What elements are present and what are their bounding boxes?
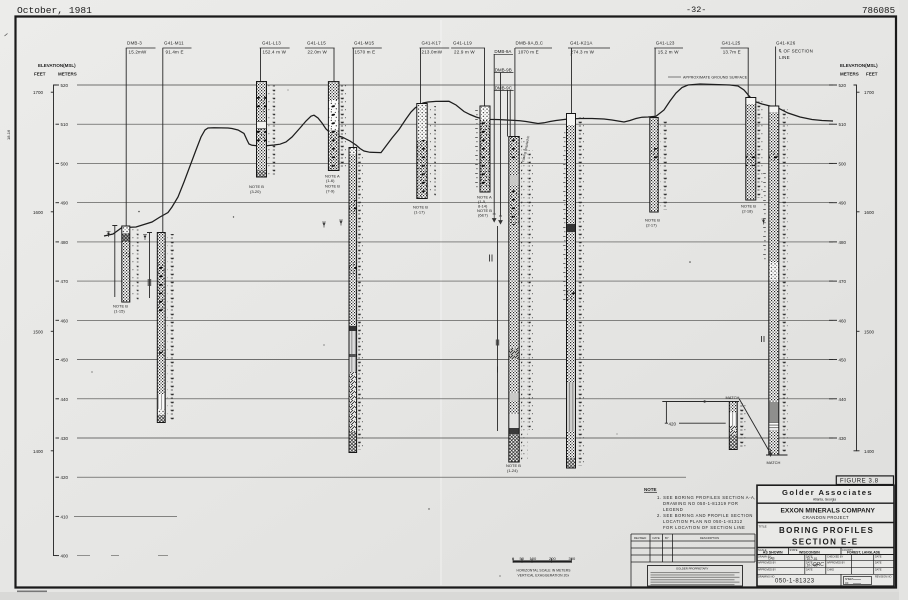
svg-text:Atlanta, Georgia: Atlanta, Georgia [813,497,836,501]
svg-text:1600: 1600 [33,210,44,215]
svg-text:℄ OF SECTION: ℄ OF SECTION [778,49,813,54]
svg-text:10-7-81: 10-7-81 [807,564,818,568]
svg-text:500: 500 [61,161,69,166]
svg-text:430: 430 [839,436,847,441]
svg-text:CAB: CAB [768,557,775,561]
svg-text:213.0mW: 213.0mW [422,49,443,54]
svg-text:APPROVED BY: APPROVED BY [758,568,776,571]
svg-text:BY: BY [665,536,669,540]
svg-text:October, 1981: October, 1981 [17,5,92,16]
svg-text:DATE: DATE [653,536,660,540]
svg-text:1500: 1500 [864,329,875,334]
svg-text:10-7-81: 10-7-81 [807,557,818,561]
svg-text:22.0m W: 22.0m W [308,49,328,54]
svg-text:510: 510 [61,122,69,127]
svg-text:FOREST, LANGLADE: FOREST, LANGLADE [847,551,881,555]
svg-text:DMB-9A,B,C: DMB-9A,B,C [516,41,544,46]
svg-text:410: 410 [61,514,69,519]
svg-text:G41-K17: G41-K17 [422,41,442,46]
svg-text:STATE: STATE [790,548,798,552]
svg-text:G41-M11: G41-M11 [164,41,184,46]
svg-text:1570 m E: 1570 m E [355,49,376,54]
svg-text:DATE: DATE [875,568,882,571]
svg-text:DRAWING NO 050-1-81319 FOR: DRAWING NO 050-1-81319 FOR [663,501,738,506]
svg-text:152.4 m W: 152.4 m W [263,49,287,54]
svg-text:1600: 1600 [864,210,875,215]
svg-text:TITLE: TITLE [759,525,767,529]
svg-text:VERTICAL EXAGGERATION 20x: VERTICAL EXAGGERATION 20x [518,573,570,577]
svg-text:WISCONSIN: WISCONSIN [799,551,820,555]
svg-text:DMB-9B: DMB-9B [495,67,512,72]
svg-text:420: 420 [669,421,677,426]
svg-text:FIGURE 3.8: FIGURE 3.8 [840,479,879,485]
svg-text:MATCH: MATCH [767,460,781,465]
svg-text:18-16: 18-16 [6,129,11,140]
svg-text:440: 440 [61,397,69,402]
svg-text:510: 510 [839,122,847,127]
svg-text:LOCATION PLAN NO 050-1-81312: LOCATION PLAN NO 050-1-81312 [663,519,743,524]
svg-text:(1-17): (1-17) [414,210,425,215]
svg-text:786085: 786085 [862,5,895,16]
svg-text:91.4m E: 91.4m E [166,49,184,54]
svg-text:450: 450 [839,358,847,363]
svg-text:2. SEE BORING AND PROFILE SECT: 2. SEE BORING AND PROFILE SECTION [657,513,753,518]
svg-text:15.2mW: 15.2mW [129,49,148,54]
svg-text:(3-20): (3-20) [250,189,261,194]
svg-text:FEET: FEET [34,72,46,77]
svg-text:CHKD: CHKD [827,568,834,571]
svg-text:480: 480 [839,240,847,245]
svg-text:400: 400 [61,554,69,559]
svg-text:1700: 1700 [33,90,44,95]
svg-text:DATE: DATE [875,562,882,565]
svg-text:AS SHOWN: AS SHOWN [763,551,783,555]
svg-text:EXXON MINERALS COMPANY: EXXON MINERALS COMPANY [781,508,876,515]
svg-text:APPROXIMATE GROUND SURFACE: APPROXIMATE GROUND SURFACE [683,76,748,80]
svg-text:G41-L13: G41-L13 [262,41,281,46]
svg-text:13.7m E: 13.7m E [723,49,741,54]
svg-text:420: 420 [61,475,69,480]
svg-text:(2-17): (2-17) [646,223,657,228]
svg-text:1. SEE BORING PROFILES SECTION: 1. SEE BORING PROFILES SECTION A-A, [657,495,756,500]
svg-text:-32-: -32- [686,5,706,15]
svg-text:FEET: FEET [866,72,878,77]
svg-text:(1-15): (1-15) [114,309,125,314]
svg-text:G41-K26: G41-K26 [776,41,796,46]
svg-text:300: 300 [569,556,576,561]
svg-text:1400: 1400 [33,449,44,454]
svg-text:22.9 m W: 22.9 m W [454,49,475,54]
svg-text:460: 460 [61,318,69,323]
svg-text:BORING PROFILES: BORING PROFILES [779,526,874,535]
svg-text:SHEET: SHEET [845,578,854,581]
svg-text:DMB-3: DMB-3 [127,41,142,46]
svg-text:DMB-9C: DMB-9C [495,85,513,90]
svg-text:520: 520 [61,83,69,88]
svg-text:1700: 1700 [864,90,875,95]
svg-text:ELEVATION(MSL): ELEVATION(MSL) [38,63,76,68]
svg-text:LEGEND: LEGEND [663,507,683,512]
svg-text:G41-M15: G41-M15 [354,41,374,46]
svg-text:MATCH: MATCH [726,395,740,400]
svg-text:NOTE: NOTE [644,487,657,492]
svg-text:DRAWING NO: DRAWING NO [758,575,774,578]
svg-text:G41-L23: G41-L23 [656,41,675,46]
svg-text:DMB-9A: DMB-9A [494,49,511,54]
svg-text:GOLDER PROPRIETARY: GOLDER PROPRIETARY [676,566,709,570]
svg-text:G41-L15: G41-L15 [307,41,326,46]
svg-text:(7-9): (7-9) [326,189,335,194]
svg-text:100: 100 [530,556,537,561]
svg-text:274.3 m W: 274.3 m W [571,49,595,54]
svg-text:470: 470 [839,279,847,284]
svg-text:(1-6): (1-6) [326,178,335,183]
svg-text:G41-K21A: G41-K21A [570,41,593,46]
svg-text:HORIZONTAL SCALE IN METERS: HORIZONTAL SCALE IN METERS [517,569,572,573]
svg-text:REVISION NO: REVISION NO [875,575,891,578]
svg-text:(6&7): (6&7) [478,213,488,218]
svg-text:FOR LOCATION OF SECTION LINE: FOR LOCATION OF SECTION LINE [663,525,745,530]
svg-text:050-1-81323: 050-1-81323 [775,579,815,585]
svg-text:METERS: METERS [840,72,859,77]
svg-text:G41-L25: G41-L25 [722,41,741,46]
svg-text:APPROVED BY: APPROVED BY [827,562,845,565]
svg-text:(1-24): (1-24) [507,468,518,473]
svg-text:1500: 1500 [33,329,44,334]
svg-text:SECTION E-E: SECTION E-E [792,538,859,547]
svg-text:LINE: LINE [779,55,790,60]
svg-text:490: 490 [839,201,847,206]
svg-text:1070 m E: 1070 m E [518,49,539,54]
svg-text:450: 450 [61,358,69,363]
svg-text:520: 520 [839,83,847,88]
svg-text:ELEVATION(MSL): ELEVATION(MSL) [840,63,878,68]
svg-text:DESCRIPTION: DESCRIPTION [700,536,719,540]
svg-text:REVISED: REVISED [634,536,646,540]
svg-text:480: 480 [61,240,69,245]
svg-text:1400: 1400 [864,449,875,454]
svg-text:CHECKED BY: CHECKED BY [827,555,844,558]
svg-text:DATE: DATE [806,568,813,571]
svg-text:(2-18): (2-18) [742,209,753,214]
svg-text:METERS: METERS [58,72,77,77]
svg-text:430: 430 [61,436,69,441]
svg-text:500: 500 [839,161,847,166]
svg-text:CRANDON PROJECT: CRANDON PROJECT [803,515,850,520]
svg-text:Golder Associates: Golder Associates [782,488,873,497]
svg-text:G41-L19: G41-L19 [453,41,472,46]
svg-text:490: 490 [61,201,69,206]
svg-text:470: 470 [61,279,69,284]
svg-text:OF: OF [845,582,849,585]
svg-text:200: 200 [549,556,556,561]
svg-text:15.2 m W: 15.2 m W [658,49,679,54]
svg-text:440: 440 [839,397,847,402]
svg-text:APPROVED BY: APPROVED BY [758,562,776,565]
svg-text:DATE: DATE [875,555,882,558]
svg-text:460: 460 [839,318,847,323]
